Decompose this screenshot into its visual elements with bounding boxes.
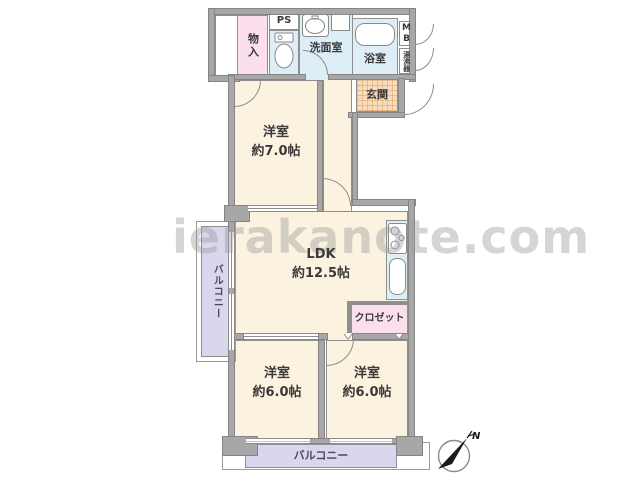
door-arc-entrance [404,84,434,115]
room-size: 約6.0帖 [234,384,320,403]
label-entrance: 玄関 [356,78,398,112]
compass-north-label: N [472,431,481,442]
room-size: 約6.0帖 [326,384,408,403]
wall [396,436,423,456]
label-closet: クロゼット [351,304,408,334]
wall [352,112,358,206]
label-western-7: 洋室 約7.0帖 [234,124,318,162]
label-balcony-bottom: バルコニー [245,444,397,468]
label-water-heater: 湯沸器 [399,48,414,74]
floor-plan: ierakanote.com 物入 PS 洗面室 浴室 MB 湯沸器 玄関 洋室… [0,0,640,480]
compass-icon: N [430,426,488,480]
room-name: 洋室 [326,365,408,384]
toilet-icon [271,32,297,73]
room-dead-space [215,15,238,76]
label-balcony-left: バルコニー [201,226,231,357]
label-pipe-space: PS [269,13,299,30]
room-name: 洋室 [234,365,320,384]
wall [208,8,215,82]
label-western-6-left: 洋室 約6.0帖 [234,365,320,403]
label-washroom: 洗面室 [299,40,353,56]
bathtub-icon [355,23,395,46]
sliding-door [244,333,318,340]
wall [224,205,250,222]
label-western-6-right: 洋室 約6.0帖 [326,365,408,403]
room-size: 約12.5帖 [234,265,408,284]
room-size: 約7.0帖 [234,143,318,162]
room-name: LDK [234,246,408,265]
label-meter-box-text: MB [401,23,412,44]
closet-door-mark [394,333,404,340]
label-meter-box: MB [399,21,414,46]
label-bathroom: 浴室 [352,51,398,67]
wall [408,199,415,440]
room-name: 洋室 [234,124,318,143]
door-arc-meter-box [415,24,434,45]
washer-space [331,14,350,31]
label-storage: 物入 [237,15,268,76]
wall [352,199,416,206]
label-ldk: LDK 約12.5帖 [234,246,408,284]
sliding-door [248,205,317,212]
door-arc-water-heater [415,48,434,71]
sink-icon [302,14,329,37]
